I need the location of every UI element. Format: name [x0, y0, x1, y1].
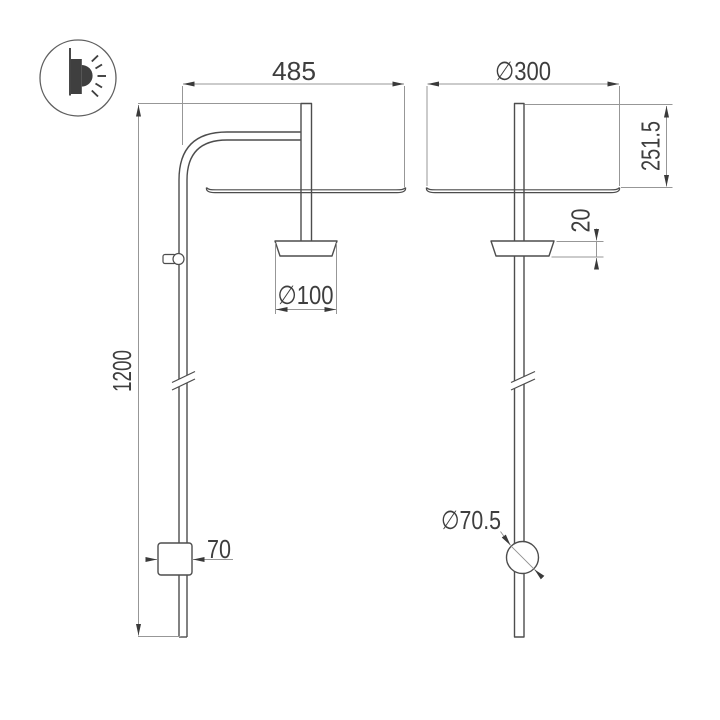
- wall-bracket-box: [158, 543, 192, 575]
- dim-arm-projection: 485: [183, 56, 405, 187]
- side-view: [158, 104, 406, 638]
- dim-head-drop: 251.5: [525, 105, 673, 188]
- front-view: [426, 104, 619, 638]
- wall-lamp-icon: [40, 40, 116, 116]
- ray-icon: [96, 65, 103, 69]
- drawing-canvas: 485 1200 ∅100 70 ∅300: [0, 0, 720, 720]
- dim-label-485: 485: [272, 56, 316, 86]
- shade-top-edge: [427, 188, 620, 190]
- dim-label-70-5: ∅70.5: [441, 505, 501, 535]
- lamp-holder-cup: [275, 241, 337, 256]
- switch-knob: [173, 254, 184, 265]
- dim-label-300: ∅300: [495, 56, 551, 86]
- ray-icon: [96, 84, 103, 88]
- dim-total-height: 1200: [107, 104, 301, 637]
- dim-shade-diameter: ∅300: [427, 56, 620, 186]
- shade-top-edge: [207, 188, 406, 190]
- dim-holder-height: 20: [552, 209, 604, 270]
- leader-line: [501, 532, 511, 546]
- icon-lamp-body: [71, 59, 82, 94]
- icon-lamp-lens: [82, 65, 93, 87]
- icon-light-rays: [92, 56, 106, 97]
- arrow-line: [535, 570, 543, 578]
- dim-label-1200: 1200: [107, 350, 137, 392]
- pole-outer-contour: [179, 132, 301, 637]
- pole-inner-contour: [187, 140, 301, 637]
- dim-label-20: 20: [566, 209, 596, 233]
- dim-label-251-5: 251.5: [636, 121, 666, 171]
- ray-icon: [92, 91, 98, 97]
- head-stem: [301, 104, 312, 242]
- ray-icon: [92, 56, 98, 62]
- lamp-holder-cup: [491, 241, 554, 256]
- technical-drawing-page: 485 1200 ∅100 70 ∅300: [0, 0, 720, 720]
- dim-label-100: ∅100: [278, 280, 334, 310]
- dim-label-70: 70: [207, 534, 231, 564]
